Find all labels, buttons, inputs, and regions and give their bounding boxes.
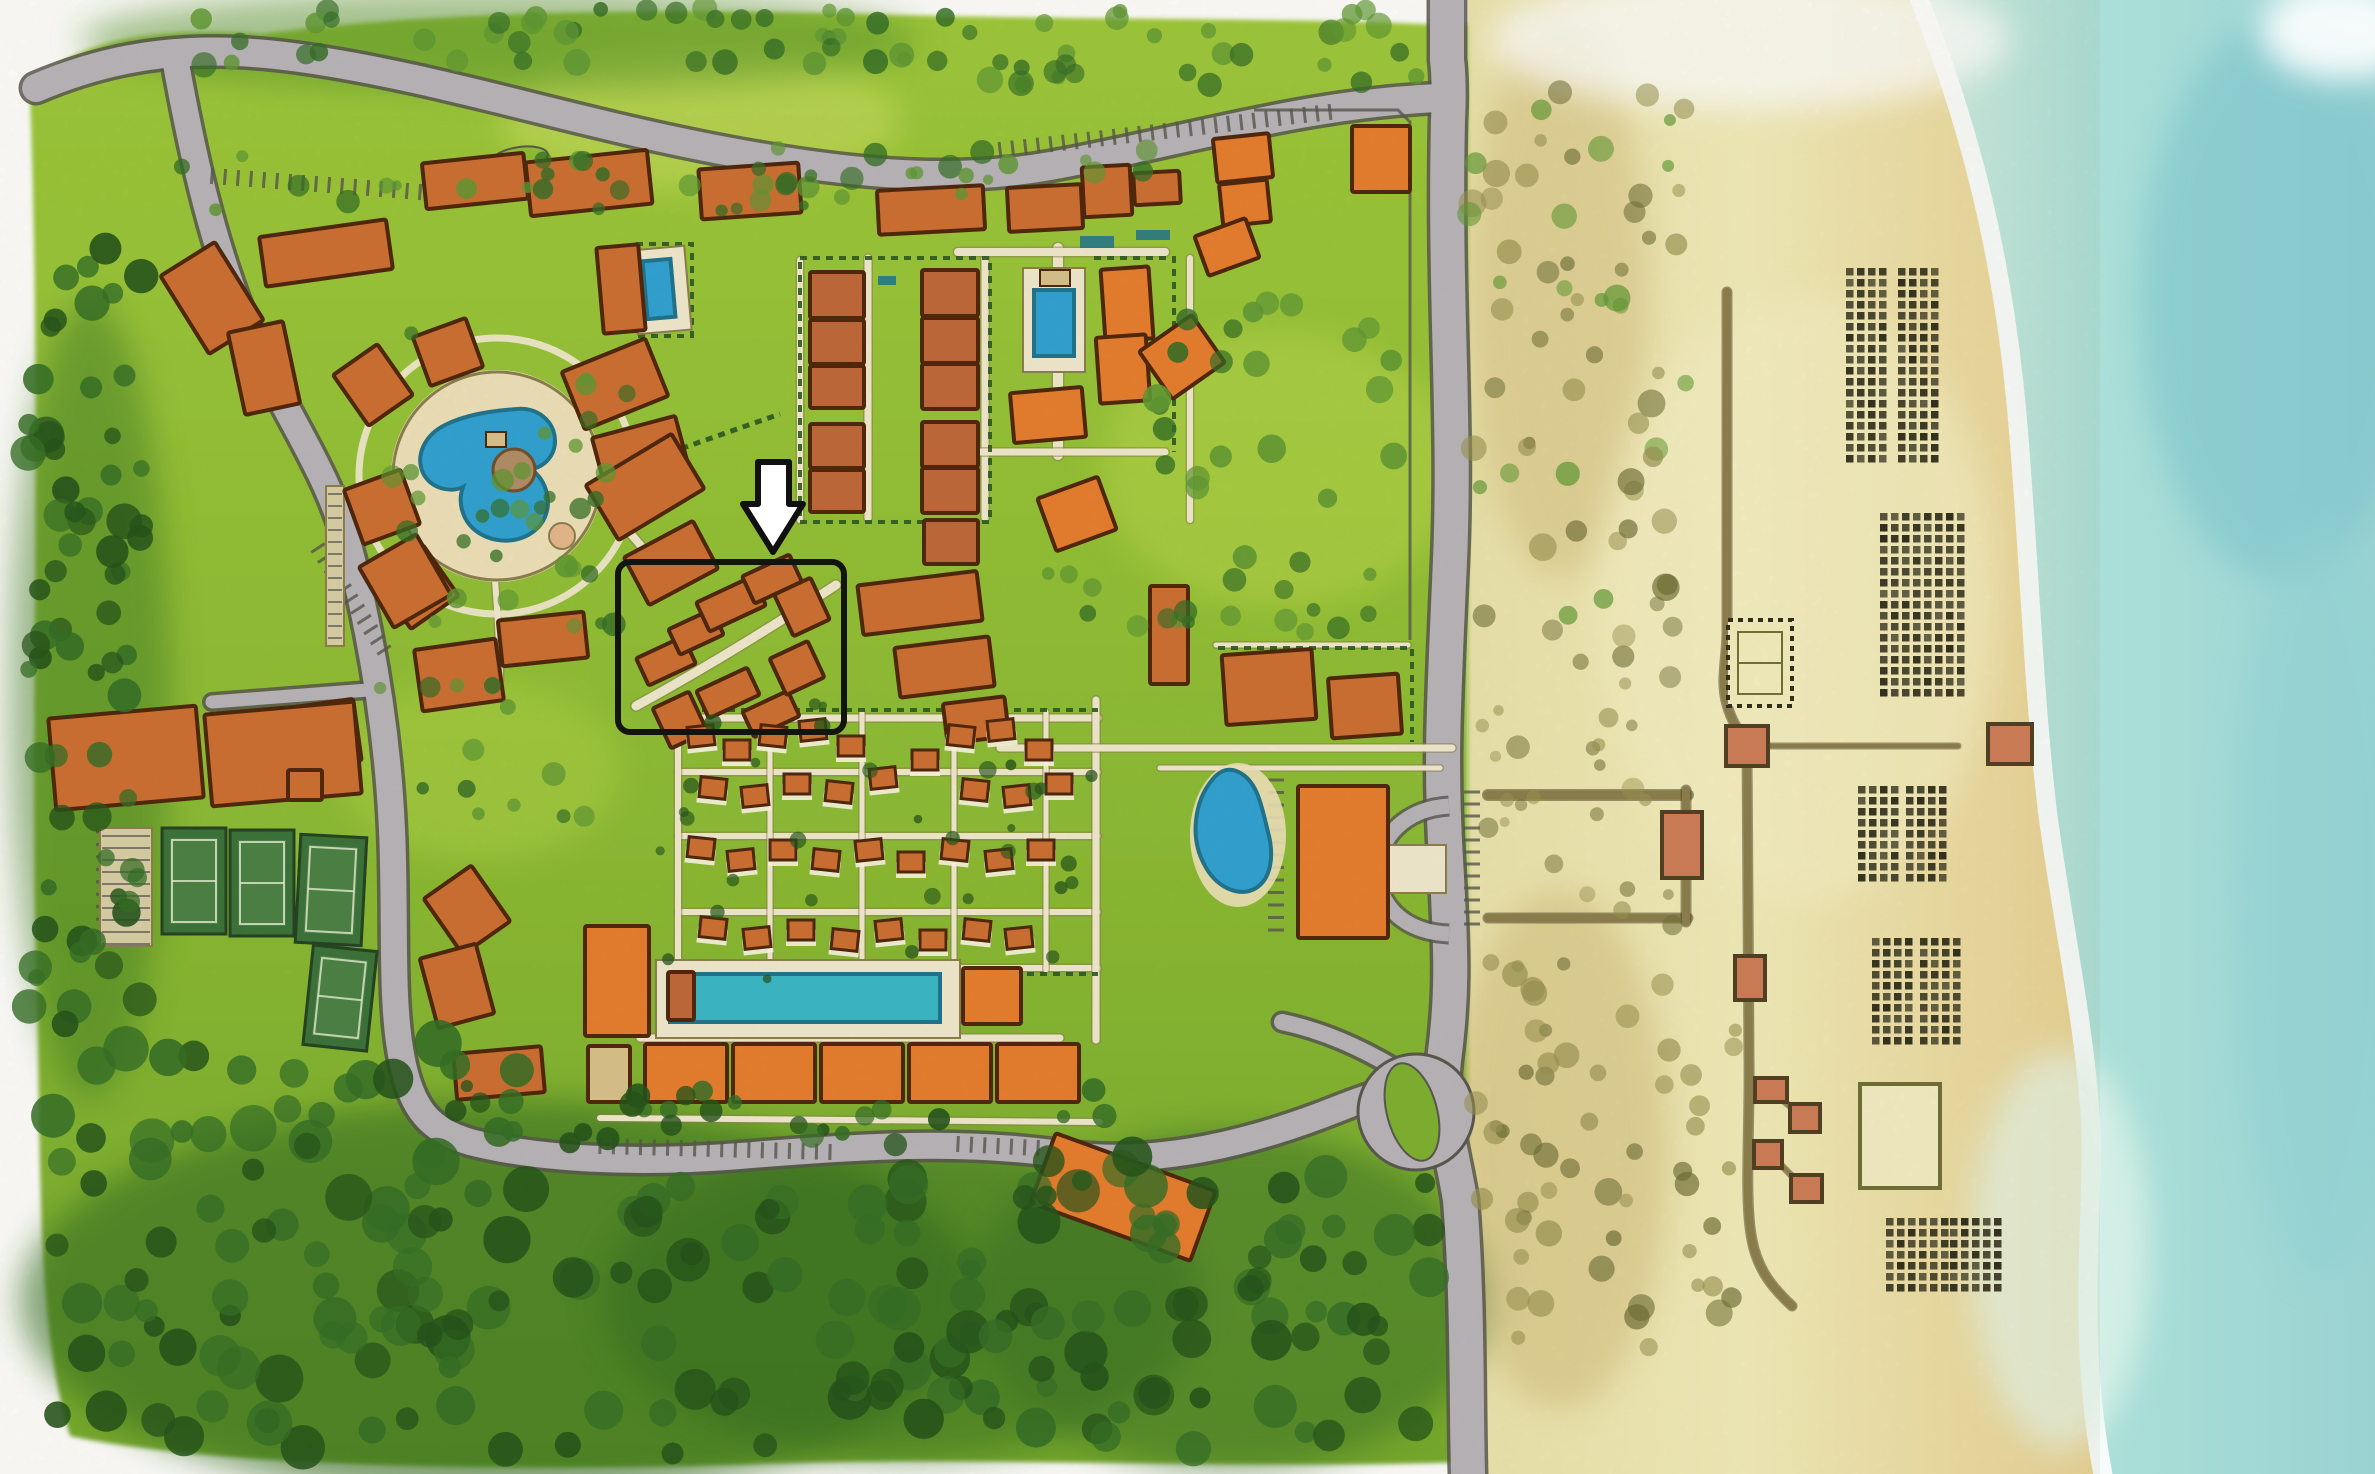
paper-texture — [0, 0, 2100, 1474]
grain — [0, 0, 2100, 1474]
site-plan-canvas — [0, 0, 2375, 1474]
resort-master-plan-map[interactable] — [0, 0, 2375, 1474]
